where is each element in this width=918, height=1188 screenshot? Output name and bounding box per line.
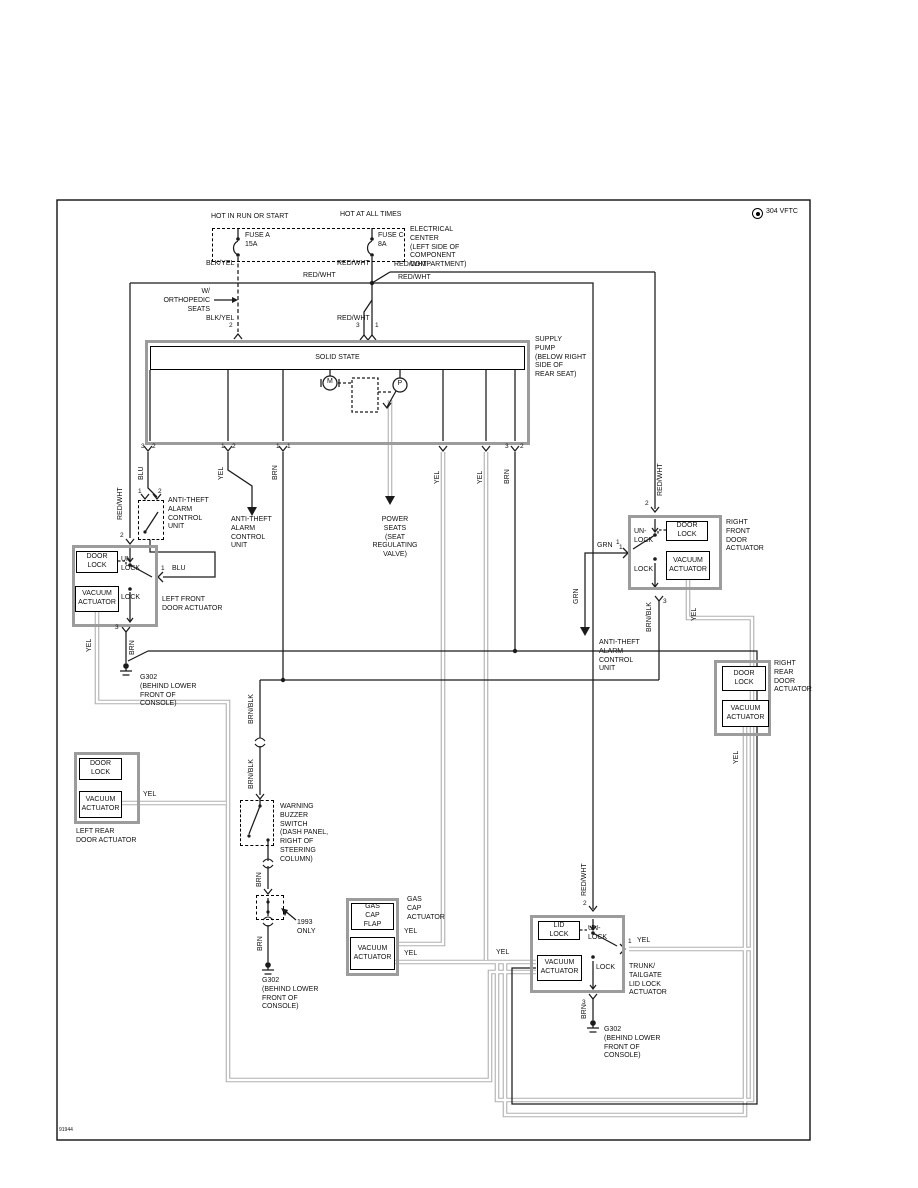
label-hot-at-all-times: HOT AT ALL TIMES: [340, 211, 401, 220]
pin-brn-1a: 1: [276, 444, 280, 451]
pin-trunk-2: 2: [583, 901, 587, 908]
wire-label-blkyel-1: BLK/YEL: [206, 260, 234, 269]
wire-label-brn-pump: BRN: [504, 469, 511, 484]
wire-label-brn-lf: BRN: [129, 640, 136, 655]
wire-label-yel-trunkpin: YEL: [637, 937, 650, 946]
label-anti-theft-unit-2: ANTI-THEFT ALARM CONTROL UNIT: [231, 516, 272, 551]
pressure-symbol-label: P: [398, 380, 403, 389]
label-warning-buzzer: WARNING BUZZER SWITCH (DASH PANEL, RIGHT…: [280, 803, 328, 864]
logo-icon: [752, 208, 763, 219]
pin-lf-2: 2: [120, 533, 124, 540]
lid-lock-box: LID LOCK: [538, 921, 580, 940]
pin-lf-1: 1: [161, 566, 165, 573]
trunk-vacuum-actuator-box: VACUUM ACTUATOR: [537, 955, 582, 981]
label-trunk-actuator: TRUNK/ TAILGATE LID LOCK ACTUATOR: [629, 963, 667, 998]
pin-ata-2: 2: [158, 489, 162, 496]
label-left-front-actuator: LEFT FRONT DOOR ACTUATOR: [162, 596, 222, 614]
pin-box-top-3: 3: [356, 323, 360, 330]
rf-vacuum-actuator-box: VACUUM ACTUATOR: [666, 551, 710, 580]
lr-vacuum-actuator-box: VACUUM ACTUATOR: [79, 791, 122, 818]
wire-label-brn-buz2: BRN: [257, 936, 264, 951]
pin-trunk-1: 1: [628, 939, 632, 946]
wire-label-redwht-trunk: RED/WHT: [581, 863, 588, 896]
label-g302-middle: G302 (BEHIND LOWER FRONT OF CONSOLE): [262, 977, 318, 1012]
wire-label-yel-lr: YEL: [143, 791, 156, 800]
pin-rf-2: 2: [645, 501, 649, 508]
pin-pump-2: 2: [520, 444, 524, 451]
pin-blu-3: 3: [141, 444, 145, 451]
wire-label-brnblk-2: BRN/BLK: [248, 759, 255, 789]
wire-label-redwht-fuse: RED/WHT: [337, 260, 370, 269]
lf-door-lock-box: DOOR LOCK: [76, 551, 118, 573]
pin-box-top-1: 1: [375, 323, 379, 330]
label-g302-left: G302 (BEHIND LOWER FRONT OF CONSOLE): [140, 674, 196, 709]
label-g302-trunk: G302 (BEHIND LOWER FRONT OF CONSOLE): [604, 1026, 660, 1061]
label-fuse-c: FUSE C 8A: [378, 232, 404, 250]
label-anti-theft-unit-3: ANTI-THEFT ALARM CONTROL UNIT: [599, 639, 640, 674]
label-gas-cap-actuator: GAS CAP ACTUATOR: [407, 896, 445, 922]
pin-yel-1: 1: [221, 444, 225, 451]
wire-label-redwht-rf: RED/WHT: [657, 463, 664, 496]
trunk-unlock-label: UN- LOCK: [588, 925, 607, 943]
pin-box-top-2: 2: [229, 323, 233, 330]
pin-ata-1: 1: [138, 489, 142, 496]
wire-label-yel-trunkleft: YEL: [496, 949, 509, 958]
wire-label-redwht-up: RED/WHT: [394, 261, 427, 270]
lf-unlock-label: UN- LOCK: [121, 556, 140, 574]
wire-label-yel-rf: YEL: [691, 608, 698, 621]
ground-symbols: [120, 664, 599, 1032]
pin-blu-2: 2: [152, 444, 156, 451]
wire-label-grn-h: GRN: [597, 542, 613, 551]
lr-door-lock-box: DOOR LOCK: [79, 758, 122, 780]
gas-vacuum-actuator-box: VACUUM ACTUATOR: [350, 937, 395, 970]
wire-label-brn-buz1: BRN: [256, 872, 263, 887]
label-left-rear-actuator: LEFT REAR DOOR ACTUATOR: [76, 828, 136, 846]
wire-label-blu-h: BLU: [172, 565, 186, 574]
label-power-seats: POWER SEATS (SEAT REGULATING VALVE): [368, 516, 422, 560]
wire-label-brnblk-1: BRN/BLK: [248, 694, 255, 724]
solid-state-box: SOLID STATE: [150, 346, 525, 370]
wire-label-redwht-low: RED/WHT: [398, 274, 431, 283]
lf-lock-label: LOCK: [121, 594, 140, 603]
pin-yel-2: 2: [232, 444, 236, 451]
wire-label-brnblk-rf: BRN/BLK: [646, 602, 653, 632]
pin-grn-1: 1: [619, 545, 623, 552]
pin-brn-1b: 1: [287, 444, 291, 451]
wiring-diagram-page: SOLID STATE DOOR LOCK VACUUM ACTUATOR DO…: [0, 0, 918, 1188]
wire-label-redwht-left: RED/WHT: [303, 272, 336, 281]
rr-vacuum-actuator-box: VACUUM ACTUATOR: [722, 700, 769, 727]
lf-vacuum-actuator-box: VACUUM ACTUATOR: [75, 586, 119, 612]
rr-door-lock-box: DOOR LOCK: [722, 666, 766, 691]
wire-label-yel-rr: YEL: [733, 751, 740, 764]
diagram-id: 91944: [59, 1127, 73, 1133]
wire-label-yel-gas2: YEL: [404, 950, 417, 959]
label-hot-in-run-or-start: HOT IN RUN OR START: [211, 213, 288, 222]
pin-pump-3: 3: [505, 444, 509, 451]
wire-label-yel-lf: YEL: [86, 639, 93, 652]
wire-label-blu-v: BLU: [138, 466, 145, 480]
page-brand: 304 VFTC: [766, 208, 798, 217]
anti-theft-contact-box: [138, 500, 164, 540]
warning-buzzer-switch-box: [240, 800, 274, 846]
electrical-center-box: [212, 228, 405, 262]
pin-rf-3: 3: [663, 599, 667, 606]
label-orthopedic-seats: W/ ORTHOPEDIC SEATS: [150, 288, 210, 314]
wire-label-redwht-lf: RED/WHT: [117, 487, 124, 520]
wire-label-yel-gas1: YEL: [404, 928, 417, 937]
wire-label-redwht-pin: RED/WHT: [337, 315, 370, 324]
wire-label-yel-hose2: YEL: [477, 471, 484, 484]
pin-trunk-3: 3: [582, 1000, 586, 1007]
rf-unlock-label: UN- LOCK: [634, 528, 653, 546]
wire-label-yel-hose1: YEL: [434, 471, 441, 484]
rf-door-lock-box: DOOR LOCK: [666, 521, 708, 541]
label-right-front-actuator: RIGHT FRONT DOOR ACTUATOR: [726, 519, 764, 554]
wire-label-yel-pin: YEL: [218, 467, 225, 480]
motor-symbol-label: M: [327, 378, 333, 387]
label-supply-pump: SUPPLY PUMP (BELOW RIGHT SIDE OF REAR SE…: [535, 336, 586, 380]
label-right-rear-actuator: RIGHT REAR DOOR ACTUATOR: [774, 660, 812, 695]
pin-lf-3: 3: [115, 625, 119, 632]
label-1993-only: 1993 ONLY: [297, 919, 316, 937]
1993-only-component-box: [256, 895, 284, 920]
wire-label-grn-v: GRN: [573, 588, 580, 604]
label-fuse-a: FUSE A 15A: [245, 232, 270, 250]
gas-cap-flap-box: GAS CAP FLAP: [351, 903, 394, 930]
label-anti-theft-unit-1: ANTI-THEFT ALARM CONTROL UNIT: [168, 497, 209, 532]
trunk-lock-label: LOCK: [596, 964, 615, 973]
rf-lock-label: LOCK: [634, 566, 653, 575]
wire-label-brn-pin: BRN: [272, 465, 279, 480]
